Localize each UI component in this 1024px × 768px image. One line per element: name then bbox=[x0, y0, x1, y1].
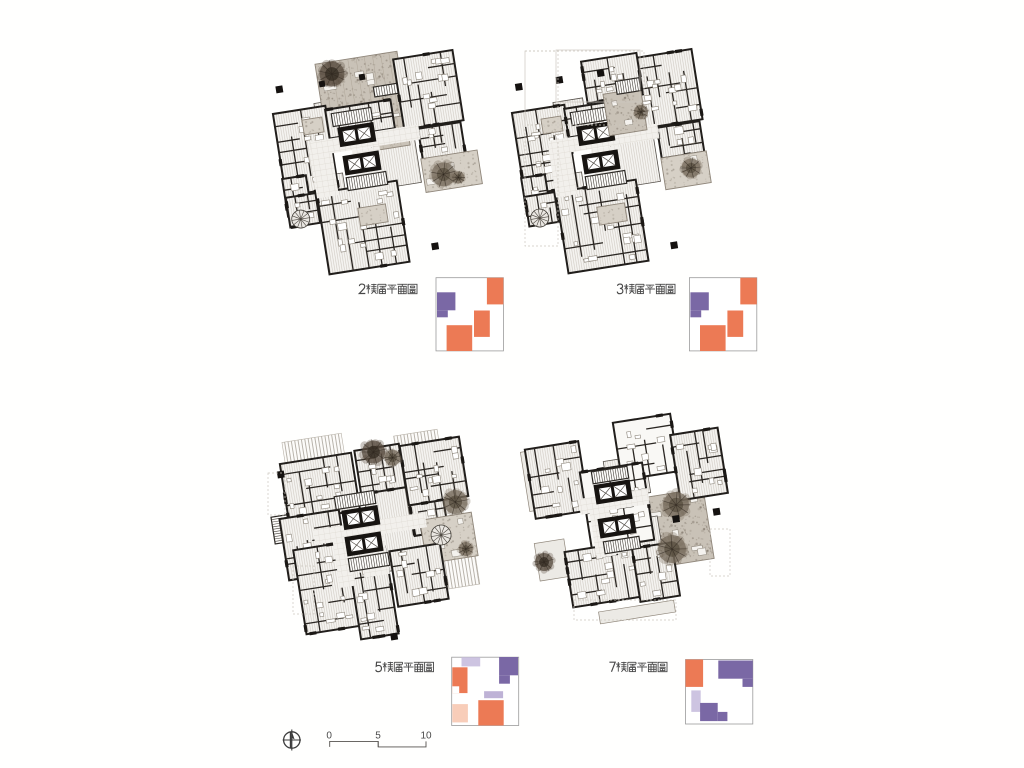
svg-text:0: 0 bbox=[326, 731, 332, 742]
svg-text:5: 5 bbox=[375, 731, 381, 742]
svg-text:10: 10 bbox=[421, 731, 433, 742]
